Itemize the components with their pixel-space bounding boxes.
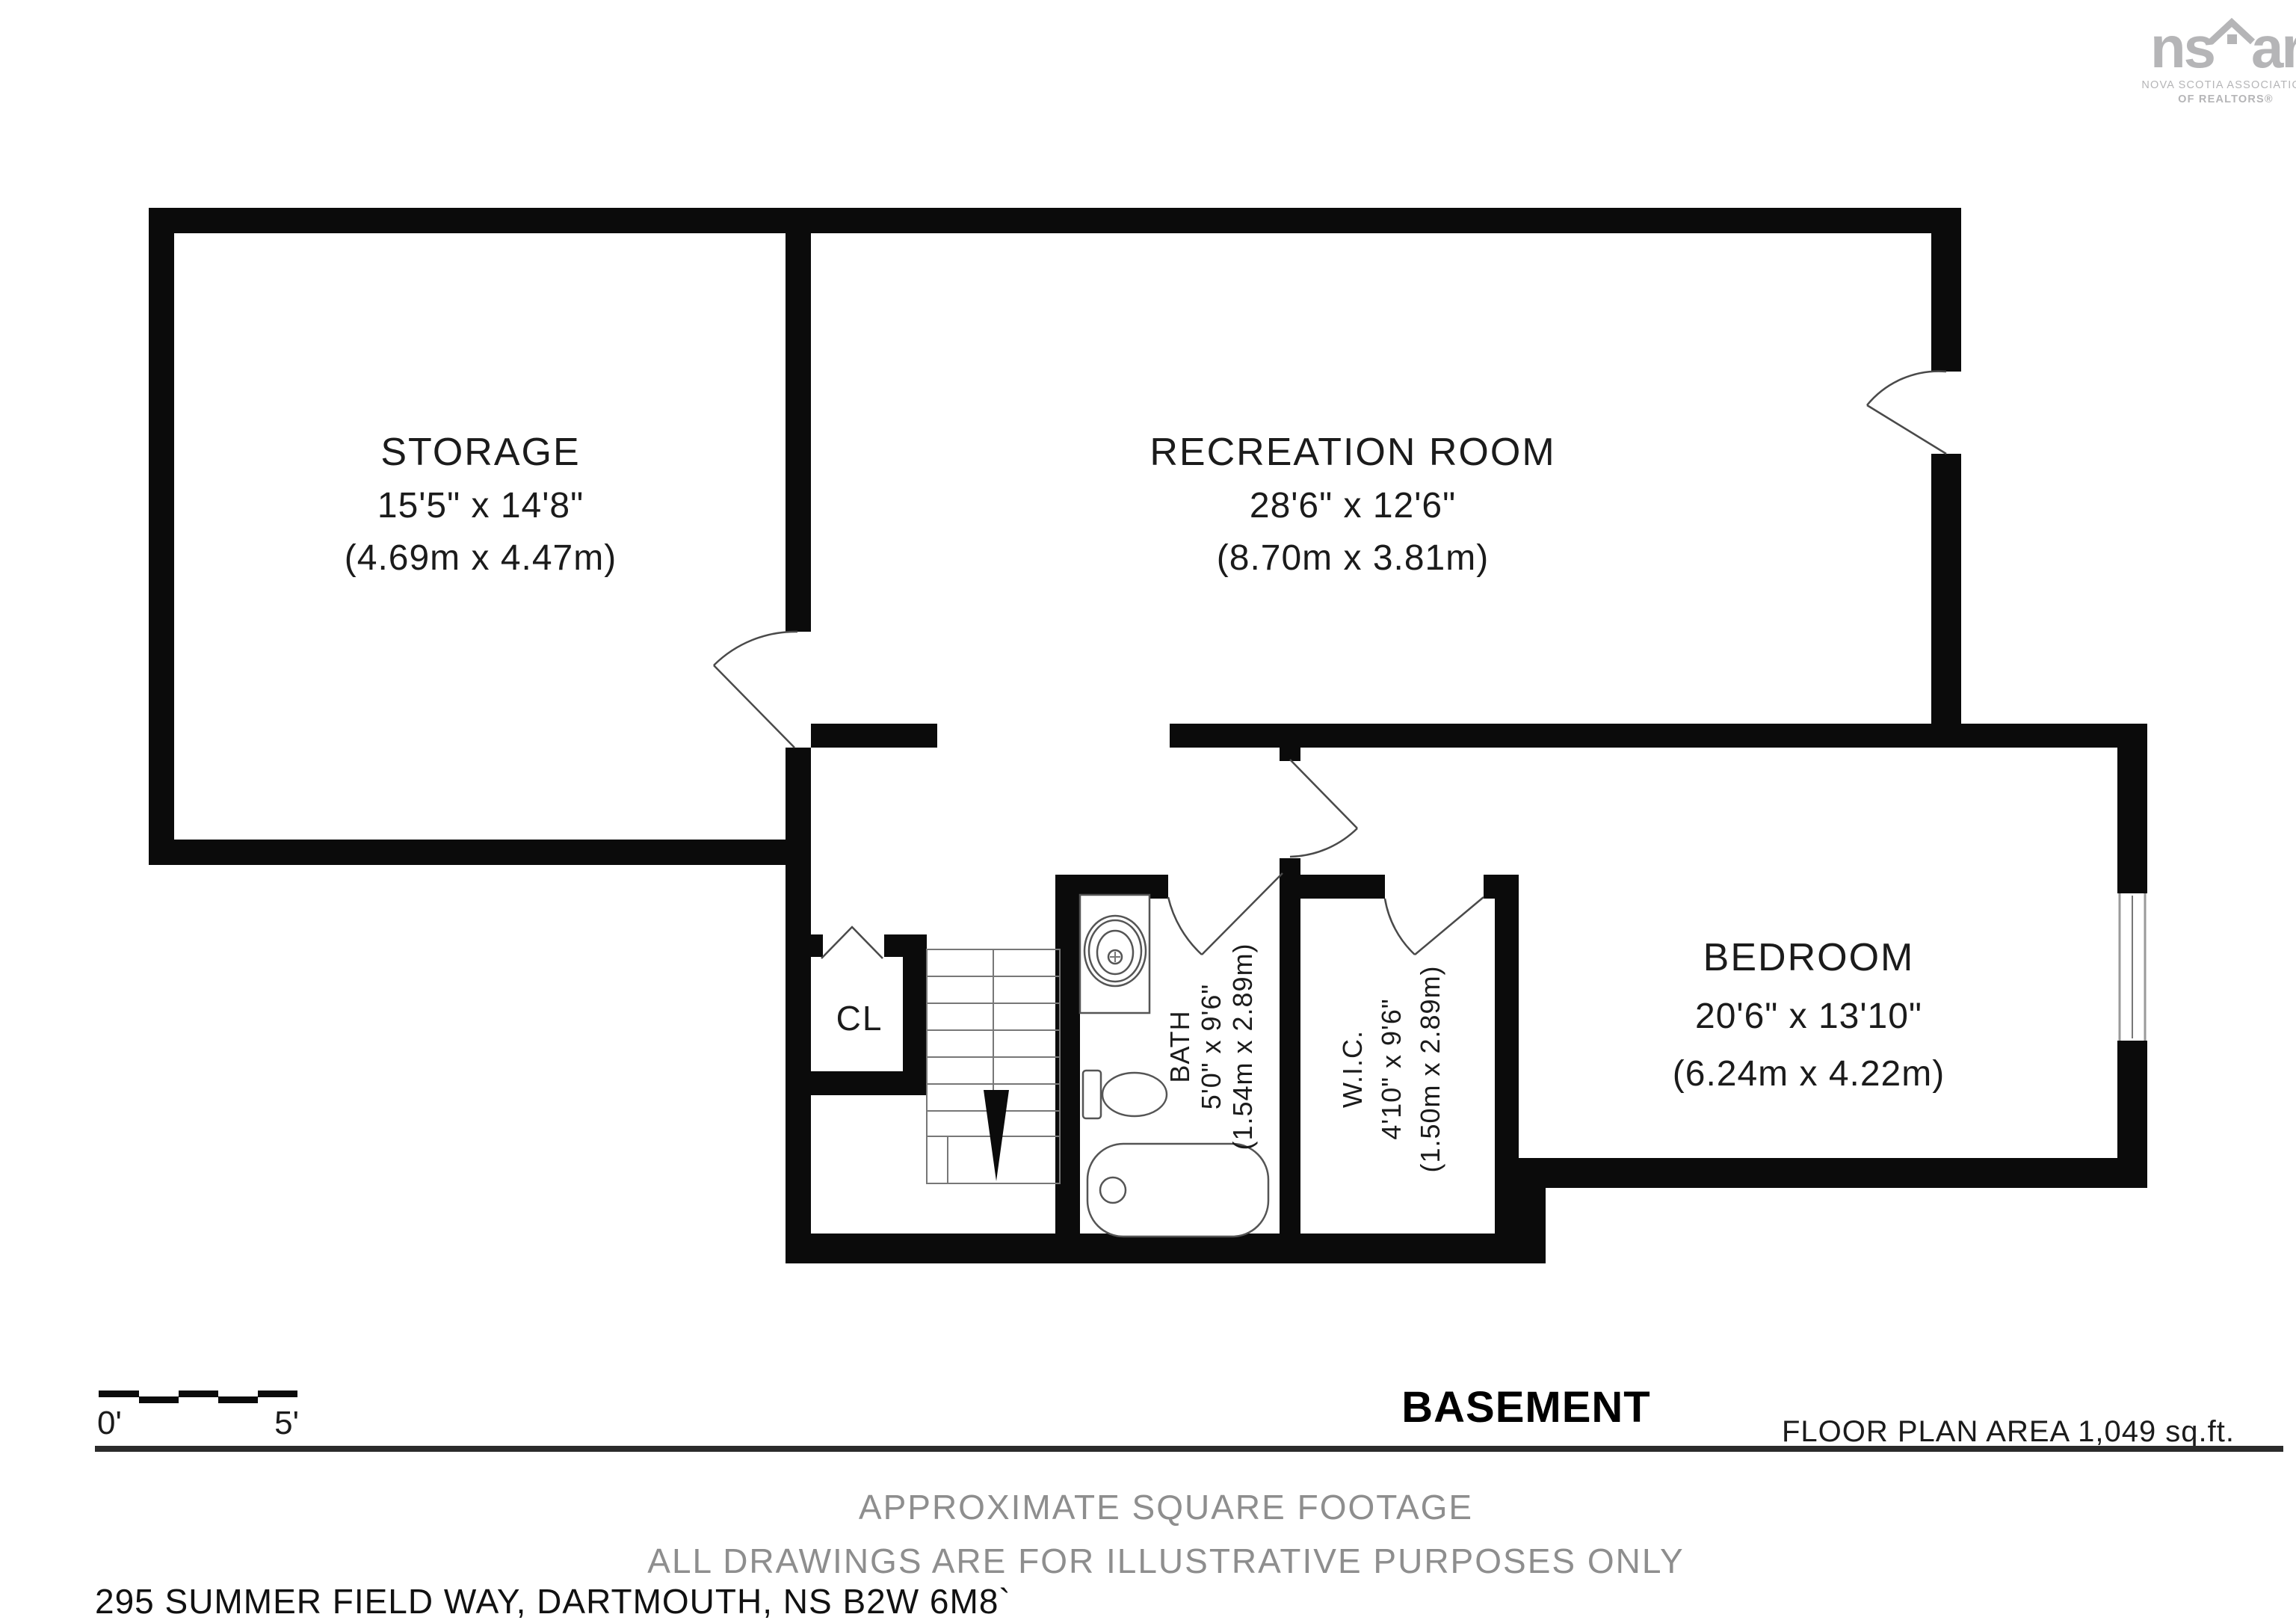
bedroom-dim-imperial: 20'6" x 13'10" xyxy=(1695,997,1922,1036)
rec-door-arc xyxy=(1867,372,1946,405)
logo-subtext-2: OF REALTORS® xyxy=(2178,93,2274,105)
scale-seg xyxy=(99,1391,139,1397)
storage-label: STORAGE xyxy=(380,431,580,474)
wall-bath-left xyxy=(1055,875,1080,1263)
level-title: BASEMENT xyxy=(1401,1383,1650,1432)
nsar-logo: ns ar NOVA SCOTIA ASSOCIATION OF REALTOR… xyxy=(2141,14,2296,105)
bathtub-drain xyxy=(1100,1177,1126,1203)
wall-bedroom-top xyxy=(1170,724,2147,748)
wic-label: W.I.C. xyxy=(1337,1030,1368,1108)
wall-bedroom-right-upper xyxy=(2117,724,2147,893)
bedroom-dim-metric: (6.24m x 4.22m) xyxy=(1673,1054,1945,1094)
wall-rec-bottom-left-seg xyxy=(811,724,937,748)
footer-rule xyxy=(95,1446,2283,1452)
bath-dim-metric: (1.54m x 2.89m) xyxy=(1227,943,1258,1150)
wall-left xyxy=(149,208,174,865)
storage-door xyxy=(714,632,797,748)
wall-middle-bottom xyxy=(786,1234,1546,1263)
wall-rec-right-lower xyxy=(1931,454,1961,724)
toilet-tank xyxy=(1083,1071,1101,1118)
wall-closet-bottom xyxy=(811,1071,927,1095)
closet-label: CL xyxy=(836,999,883,1038)
wic-door xyxy=(1385,897,1484,955)
scale-end-label: 5' xyxy=(274,1405,299,1441)
wall-wic-right xyxy=(1495,875,1519,1263)
hall-door-leaf xyxy=(1290,760,1357,828)
storage-dim-metric: (4.69m x 4.47m) xyxy=(345,538,617,578)
house-icon xyxy=(2211,22,2253,44)
wic-dim-imperial: 4'10" x 9'6" xyxy=(1376,998,1407,1139)
bath-dim-imperial: 5'0" x 9'6" xyxy=(1196,984,1226,1109)
scale-seg xyxy=(139,1396,179,1403)
storage-dim-imperial: 15'5" x 14'8" xyxy=(377,486,584,526)
footer: BASEMENT FLOOR PLAN AREA 1,049 sq.ft. AP… xyxy=(95,1383,2283,1621)
scale-bar: 0' 5' xyxy=(97,1391,299,1441)
floor-plan-area: FLOOR PLAN AREA 1,049 sq.ft. xyxy=(1782,1415,2235,1448)
hall-bedroom-door xyxy=(1290,760,1357,857)
bedroom-label: BEDROOM xyxy=(1703,936,1915,979)
wall-wic-top-left xyxy=(1300,875,1385,899)
scale-seg xyxy=(179,1391,218,1397)
room-labels: STORAGE 15'5" x 14'8" (4.69m x 4.47m) RE… xyxy=(345,431,1945,1173)
wall-closet-top-stub xyxy=(811,934,823,957)
scale-seg xyxy=(258,1391,297,1397)
bath-label: BATH xyxy=(1164,1010,1195,1082)
wic-door-arc xyxy=(1385,899,1415,955)
storage-door-arc xyxy=(714,632,797,665)
scale-seg xyxy=(218,1396,258,1403)
floor-plan-canvas: STORAGE 15'5" x 14'8" (4.69m x 4.47m) RE… xyxy=(0,0,2296,1623)
bath-door-arc xyxy=(1168,897,1202,955)
wall-bath-wic-divider-stub xyxy=(1280,748,1300,761)
wic-dim-metric: (1.50m x 2.89m) xyxy=(1415,965,1445,1172)
wall-rec-right-upper xyxy=(1931,233,1961,372)
closet-door-chevron xyxy=(821,927,883,958)
bath-door xyxy=(1168,873,1283,955)
wall-top xyxy=(149,208,1961,233)
toilet-bowl xyxy=(1102,1073,1167,1116)
recreation-dim-imperial: 28'6" x 12'6" xyxy=(1250,486,1456,526)
logo-ar-text: ar xyxy=(2251,14,2296,80)
wall-bedroom-bottom xyxy=(1519,1158,2147,1188)
house-body xyxy=(2227,34,2237,44)
wall-closet-stairs-divider xyxy=(903,934,927,1095)
address: 295 SUMMER FIELD WAY, DARTMOUTH, NS B2W … xyxy=(95,1582,1011,1621)
storage-door-leaf xyxy=(714,665,794,748)
scale-start-label: 0' xyxy=(97,1405,122,1441)
recreation-exterior-door xyxy=(1867,372,1946,454)
bedroom-window xyxy=(2120,893,2145,1041)
wall-storage-bottom xyxy=(149,840,811,865)
wall-bath-wic-divider xyxy=(1280,858,1300,1263)
wall-divider-storage-rec-lower xyxy=(786,748,811,1263)
wall-divider-storage-rec-upper xyxy=(786,233,811,632)
disclaimer-line1: APPROXIMATE SQUARE FOOTAGE xyxy=(859,1488,1473,1527)
disclaimer-line2: ALL DRAWINGS ARE FOR ILLUSTRATIVE PURPOS… xyxy=(647,1542,1684,1580)
recreation-dim-metric: (8.70m x 3.81m) xyxy=(1217,538,1489,578)
hall-door-arc xyxy=(1290,828,1357,857)
recreation-label: RECREATION ROOM xyxy=(1149,431,1555,474)
wic-door-leaf xyxy=(1415,897,1484,955)
rec-door-leaf xyxy=(1867,405,1946,454)
logo-ns-text: ns xyxy=(2150,14,2215,80)
stairs xyxy=(927,949,1060,1183)
bath-door-leaf xyxy=(1202,873,1283,955)
logo-subtext-1: NOVA SCOTIA ASSOCIATION xyxy=(2141,79,2296,91)
